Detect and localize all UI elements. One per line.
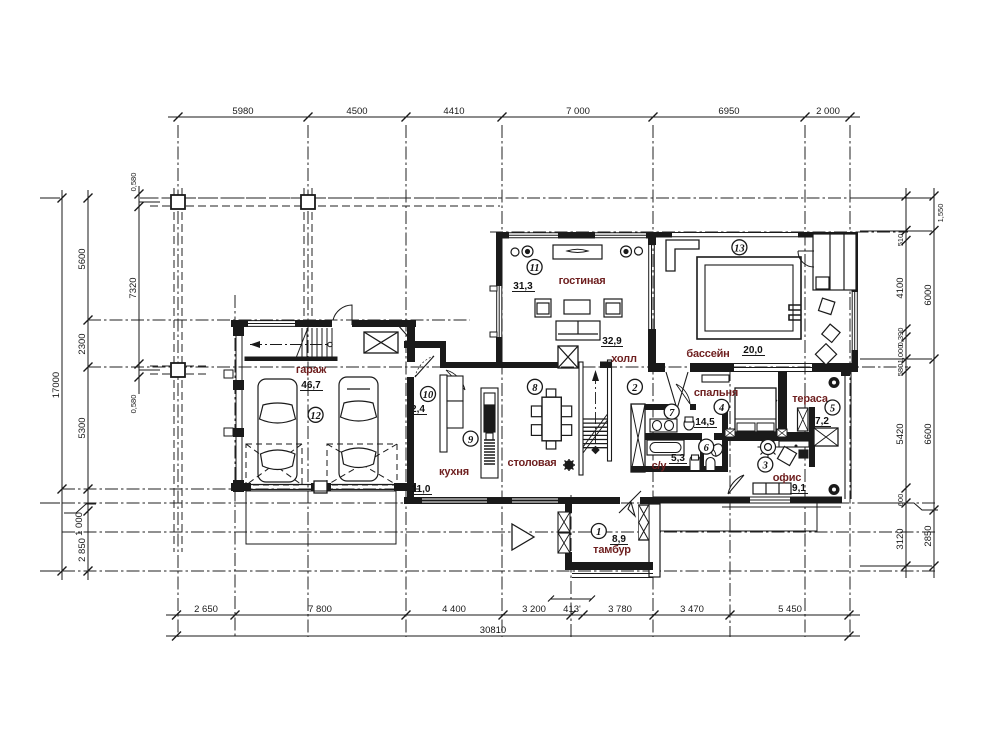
- svg-text:7 000: 7 000: [566, 106, 590, 117]
- svg-text:20,0: 20,0: [743, 345, 763, 356]
- svg-text:6: 6: [704, 443, 710, 454]
- svg-text:5 450: 5 450: [778, 604, 802, 615]
- svg-text:гостиная: гостиная: [559, 275, 606, 287]
- svg-text:холл: холл: [611, 353, 637, 365]
- svg-text:1 000: 1 000: [74, 512, 85, 536]
- svg-text:1: 1: [596, 527, 601, 538]
- svg-text:6000: 6000: [923, 284, 934, 305]
- svg-text:тераса: тераса: [792, 393, 829, 405]
- svg-text:5: 5: [830, 404, 835, 415]
- svg-text:2: 2: [631, 383, 638, 394]
- svg-text:14,5: 14,5: [695, 417, 715, 428]
- svg-text:3 470: 3 470: [680, 604, 704, 615]
- svg-text:12: 12: [310, 411, 321, 422]
- svg-text:13: 13: [734, 244, 745, 255]
- svg-text:6600: 6600: [923, 423, 934, 444]
- svg-text:4: 4: [718, 403, 724, 414]
- svg-text:7 800: 7 800: [308, 604, 332, 615]
- svg-text:2300: 2300: [77, 333, 88, 354]
- svg-text:30810: 30810: [480, 625, 506, 636]
- svg-text:46,7: 46,7: [301, 380, 321, 391]
- svg-text:11: 11: [530, 263, 540, 274]
- svg-text:5,3: 5,3: [671, 453, 685, 464]
- svg-text:9,1: 9,1: [792, 483, 806, 494]
- svg-text:510: 510: [896, 234, 905, 247]
- svg-text:кухня: кухня: [439, 466, 469, 478]
- svg-text:3120: 3120: [895, 528, 906, 549]
- svg-text:3: 3: [762, 461, 768, 472]
- svg-text:5300: 5300: [77, 417, 88, 438]
- svg-text:11,0: 11,0: [412, 484, 431, 495]
- svg-text:спальня: спальня: [694, 387, 738, 399]
- svg-text:4100: 4100: [895, 277, 906, 298]
- svg-text:31,3: 31,3: [513, 281, 533, 292]
- svg-text:0,580: 0,580: [129, 395, 138, 414]
- svg-text:4410: 4410: [443, 106, 464, 117]
- svg-text:2 650: 2 650: [194, 604, 218, 615]
- svg-text:6950: 6950: [718, 106, 739, 117]
- svg-text:с/у: с/у: [652, 460, 668, 472]
- svg-text:7320: 7320: [128, 277, 139, 298]
- svg-text:0,580: 0,580: [129, 173, 138, 192]
- svg-text:бассейн: бассейн: [686, 348, 729, 360]
- svg-text:1,000: 1,000: [896, 345, 905, 364]
- svg-text:гараж: гараж: [296, 364, 327, 376]
- svg-text:3 780: 3 780: [608, 604, 632, 615]
- svg-text:2850: 2850: [923, 525, 934, 546]
- svg-text:7,2: 7,2: [815, 416, 829, 427]
- svg-text:3 200: 3 200: [522, 604, 546, 615]
- svg-text:17000: 17000: [51, 372, 62, 398]
- svg-text:9: 9: [468, 435, 474, 446]
- svg-text:10: 10: [423, 390, 434, 401]
- svg-text:2 850: 2 850: [77, 538, 88, 562]
- svg-text:8: 8: [532, 383, 538, 394]
- svg-text:5600: 5600: [77, 248, 88, 269]
- svg-text:столовая: столовая: [508, 457, 557, 469]
- svg-text:2 000: 2 000: [816, 106, 840, 117]
- svg-text:600: 600: [896, 494, 905, 507]
- svg-text:4 400: 4 400: [442, 604, 466, 615]
- svg-text:580: 580: [896, 364, 905, 377]
- svg-text:тамбур: тамбур: [593, 544, 631, 556]
- svg-text:413': 413': [563, 604, 581, 615]
- svg-text:5420: 5420: [895, 423, 906, 444]
- svg-text:5980: 5980: [232, 106, 253, 117]
- svg-text:0,390: 0,390: [896, 328, 905, 347]
- svg-text:7: 7: [669, 408, 675, 419]
- svg-text:32,9: 32,9: [602, 336, 622, 347]
- svg-text:4500: 4500: [346, 106, 367, 117]
- svg-text:1,550: 1,550: [936, 204, 945, 223]
